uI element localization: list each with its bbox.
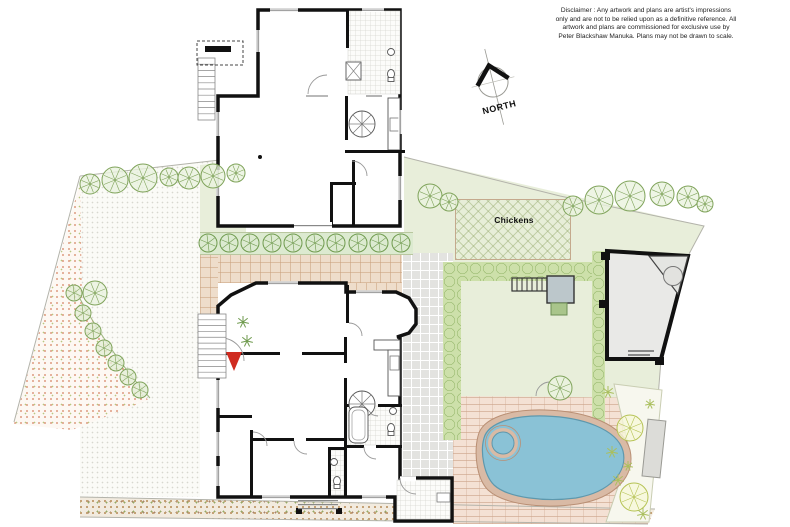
courtyard-dining-strip (346, 283, 404, 293)
site-label-cabana: Cabana (625, 302, 657, 312)
fridge-box-kitchen: F (347, 343, 361, 356)
site-label-pizza: Pizza (667, 273, 679, 278)
opening (306, 94, 328, 97)
toilet (388, 424, 395, 436)
door-arc (366, 404, 378, 416)
wall (330, 182, 356, 185)
toilet (388, 70, 395, 82)
site-plan: Disclaimer : Any artwork and plans are a… (0, 0, 790, 527)
room-label-kitchenette: Kitchenette (360, 111, 395, 118)
north-arrow: NORTH (445, 42, 545, 132)
courtyard-entry (200, 253, 218, 378)
plant-tuft (241, 335, 253, 346)
wall (328, 447, 331, 497)
tree (615, 181, 645, 211)
shower-box (346, 62, 361, 80)
wall (250, 430, 253, 497)
disclaimer-line-4: Peter Blackshaw Manuka. Plans may not be… (548, 33, 744, 42)
fridge-box-kitchenette: F (386, 132, 399, 144)
wall (344, 406, 347, 447)
step-line (294, 225, 332, 226)
wall (346, 404, 366, 407)
room-label-store: Store (335, 202, 349, 208)
bathtub (349, 407, 368, 443)
opening (398, 176, 402, 200)
opening (294, 222, 332, 228)
wall (328, 447, 344, 450)
room-label-dining: Dining (364, 308, 392, 318)
wall (330, 182, 333, 226)
opening (256, 30, 260, 52)
disclaimer-line-1: Disclaimer : Any artwork and plans are a… (548, 7, 744, 16)
door-arc (253, 432, 267, 446)
plant-tuft (237, 316, 249, 327)
disclaimer-line-3: artwork and plans are commissioned for e… (548, 24, 744, 33)
door-arc (294, 441, 307, 454)
door-arc (308, 75, 327, 94)
site-label-chickens: Chickens (494, 216, 533, 226)
pantry-box-kitchen: P (346, 382, 360, 395)
opening (216, 432, 220, 456)
unit-box-upper (391, 12, 400, 24)
basin (388, 49, 395, 56)
washer-box-upper: W (377, 12, 391, 24)
opening (366, 94, 382, 97)
tree (697, 196, 713, 212)
wall (252, 438, 294, 441)
wall (346, 445, 364, 448)
entry-label: ENTRY (218, 340, 241, 347)
room-label-bed1: Bed 1 (287, 454, 310, 463)
door-arc (400, 478, 416, 494)
wall (306, 438, 344, 441)
wall (205, 46, 231, 52)
tiled-floor (330, 449, 344, 495)
room-label-lounge: Lounge (280, 313, 312, 323)
deck-dashed-outline (197, 41, 243, 65)
opening (398, 110, 402, 134)
basin (331, 459, 338, 466)
room-label-bed2: Bed 2 (364, 462, 387, 471)
wall (352, 160, 355, 226)
room-label-kitchen: Kitchen (361, 363, 386, 370)
disclaimer-line-2: only and are not to be relied upon as a … (548, 16, 744, 25)
opening (216, 380, 220, 408)
courtyard-top (200, 253, 413, 283)
kitchen-counter (388, 350, 400, 396)
shrub-strip (200, 232, 413, 255)
wall (218, 352, 280, 355)
wall (376, 445, 402, 448)
washer-box-laundry: W (406, 502, 421, 515)
hedge-top (443, 262, 613, 281)
room-label-rumpus-bed5: Rumpus /Bed 5 (288, 34, 323, 54)
disclaimer-text: Disclaimer : Any artwork and plans are a… (548, 7, 744, 42)
room-label-living: Living (285, 383, 311, 393)
entry-arrow-icon (226, 352, 242, 371)
wall (345, 96, 348, 140)
north-label: NORTH (481, 98, 517, 116)
wall (346, 10, 349, 48)
wall (344, 447, 347, 497)
deck-stairs (198, 58, 215, 120)
opening (262, 495, 290, 499)
door-arc (352, 161, 367, 176)
sink (390, 118, 399, 131)
door-arc (349, 323, 362, 336)
room-label-bed3: Bed 3 (229, 443, 252, 452)
tree (650, 182, 674, 206)
door-arc (364, 447, 376, 459)
basin (390, 408, 397, 415)
sink (390, 356, 399, 370)
wall (302, 352, 346, 355)
tiled-floor (348, 406, 400, 445)
opening (216, 112, 220, 136)
kitchen-counter (374, 340, 400, 350)
opening (362, 495, 386, 499)
room-label-garage: Garage (276, 148, 308, 158)
chickens-pen (455, 199, 571, 260)
wall (218, 415, 252, 418)
wall (378, 404, 402, 407)
garage-column (258, 155, 262, 159)
toilet (334, 477, 341, 489)
step-line (298, 500, 338, 501)
tree (677, 186, 699, 208)
wall (345, 150, 405, 153)
hedge-left (443, 262, 461, 440)
opening (270, 8, 298, 12)
room-label-bed4: Bed 4 (365, 176, 388, 185)
bathtub-inner (352, 410, 365, 440)
hedge-cabana (592, 251, 605, 426)
pool-paving (453, 396, 661, 524)
opening (216, 466, 220, 486)
sink (437, 493, 450, 502)
